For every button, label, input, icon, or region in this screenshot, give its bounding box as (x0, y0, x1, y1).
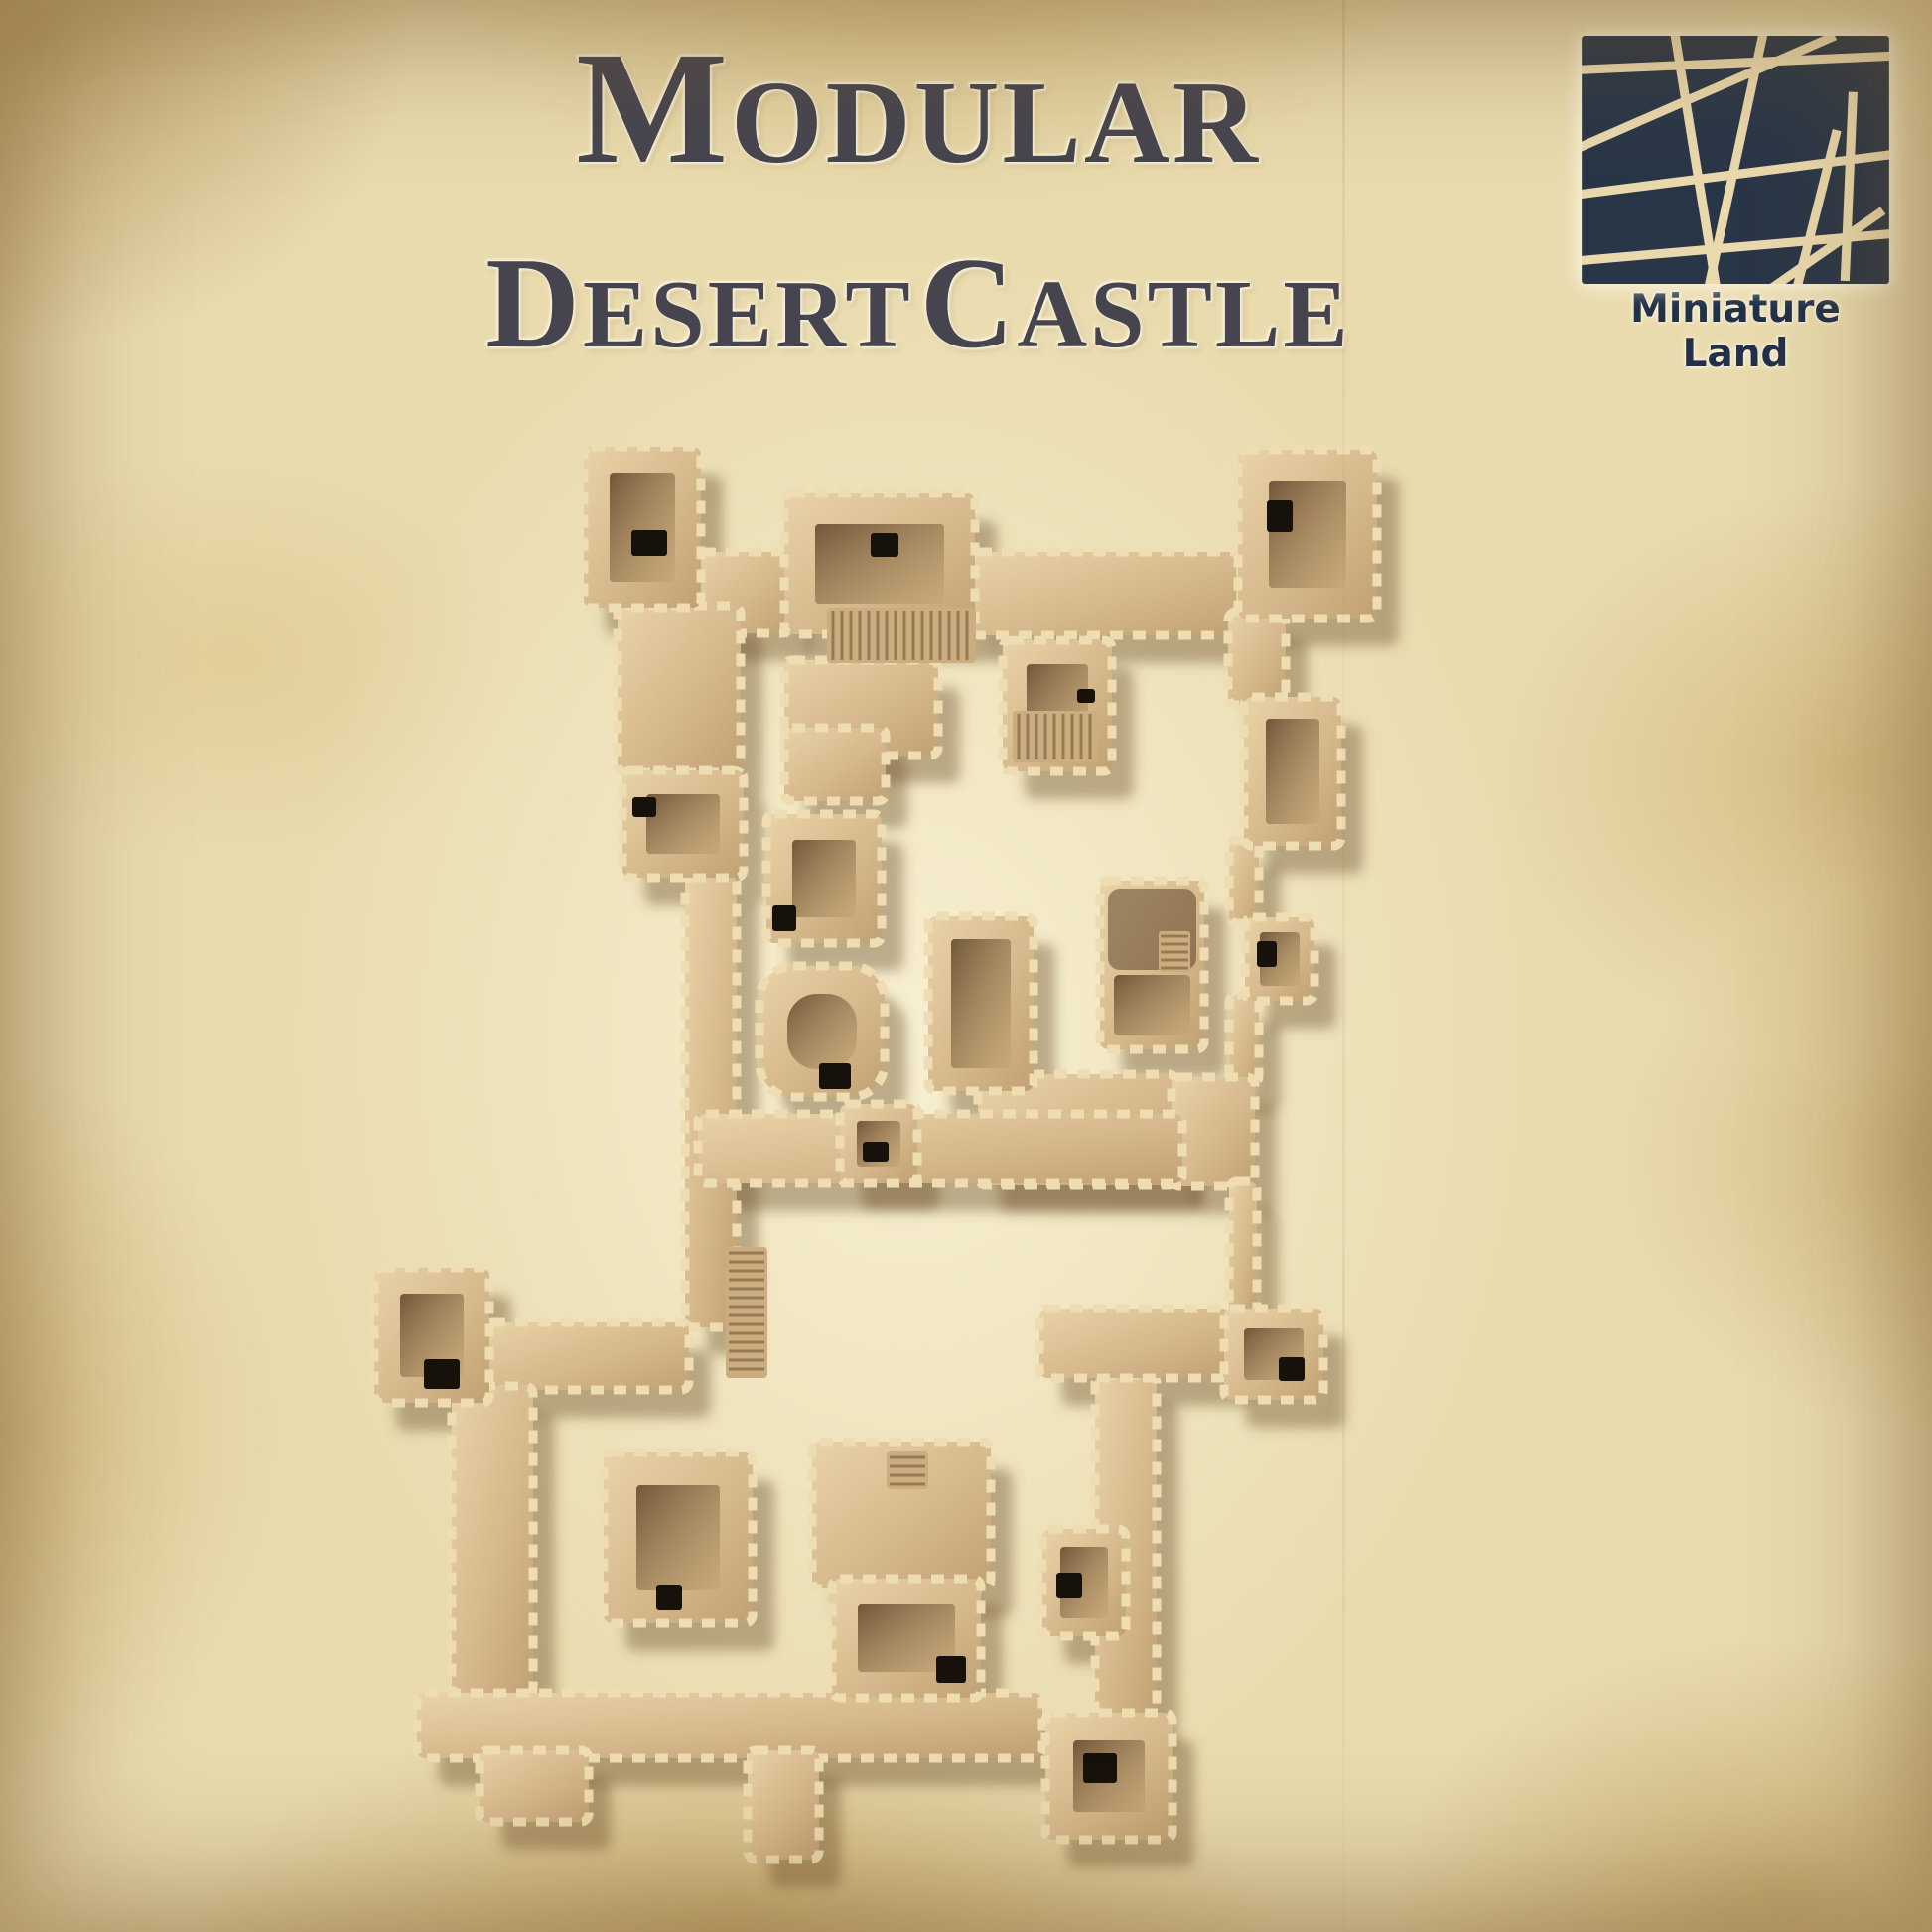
title-line-2: DESERT CASTLE (124, 243, 1713, 403)
castle-southwest-link-wall (484, 1322, 689, 1390)
castle-east-watchtower (1245, 917, 1314, 1001)
castle-bailey-north-wall (1039, 1309, 1230, 1378)
castle-mid-east-tower (1224, 1309, 1323, 1400)
castle-window-round-house (819, 1063, 851, 1089)
castle-window-gatehouse (871, 533, 898, 557)
castle-east-curtain-wall-2 (1229, 995, 1259, 1084)
castle-terrace-house (1100, 881, 1204, 1049)
castle-bailey-east-tower (1042, 1529, 1126, 1636)
castle-northeast-tower (1238, 450, 1377, 619)
castle-north-wall-east (971, 552, 1241, 635)
castle-south-wall-step-1 (480, 1750, 589, 1822)
castle-window-bailey-east-tower (1056, 1573, 1082, 1598)
product-image: { "header": { "title_line1": "MODULAR", … (0, 0, 1932, 1932)
castle-window-northwest-tower (631, 530, 667, 556)
castle-south-wall-step-2 (748, 1750, 819, 1860)
title-line-1: MODULAR (124, 26, 1713, 241)
castle-northwest-tower (584, 447, 701, 608)
castle-long-house (928, 916, 1034, 1091)
castle-window-inner-gate-tower (863, 1142, 889, 1162)
castle-east-wall-upper (1228, 612, 1286, 705)
castle-great-hall-annex (784, 728, 886, 801)
castle-west-wall-upper (618, 606, 741, 772)
castle-east-curtain-wall-3 (1229, 1181, 1257, 1314)
castle-east-curtain-wall-1 (1229, 840, 1259, 923)
castle-gate-stairs (827, 608, 976, 663)
miniature-land-logo-icon (1582, 36, 1889, 284)
page-title: MODULAR DESERT CASTLE (124, 26, 1713, 403)
castle-window-southwest-great-tower (424, 1359, 460, 1389)
castle-bailey-west-wall (452, 1386, 533, 1699)
castle-window-stable (656, 1585, 682, 1610)
castle-window-keep-annex (936, 1656, 966, 1683)
castle-window-storehouse (772, 905, 796, 931)
castle-west-tower (622, 770, 744, 878)
castle-window-southeast-tower (1083, 1753, 1117, 1783)
castle-east-tower (1244, 697, 1341, 846)
castle-window-northeast-tower (1267, 500, 1293, 532)
castle-inner-cross-wall (698, 1114, 1182, 1183)
brand-name: Miniature Land (1582, 287, 1889, 376)
castle-window-mid-east-tower (1279, 1357, 1305, 1381)
castle-window-west-tower (632, 797, 656, 817)
castle-barracks-stairs (1013, 711, 1098, 762)
castle-window-barracks (1077, 689, 1095, 703)
brand-logo: Miniature Land (1582, 36, 1889, 376)
castle-wall-stairs (726, 1247, 767, 1378)
castle-keep-stairs (887, 1451, 928, 1489)
castle-window-east-watchtower (1257, 941, 1277, 967)
parchment-fold-line (1342, 0, 1345, 1932)
